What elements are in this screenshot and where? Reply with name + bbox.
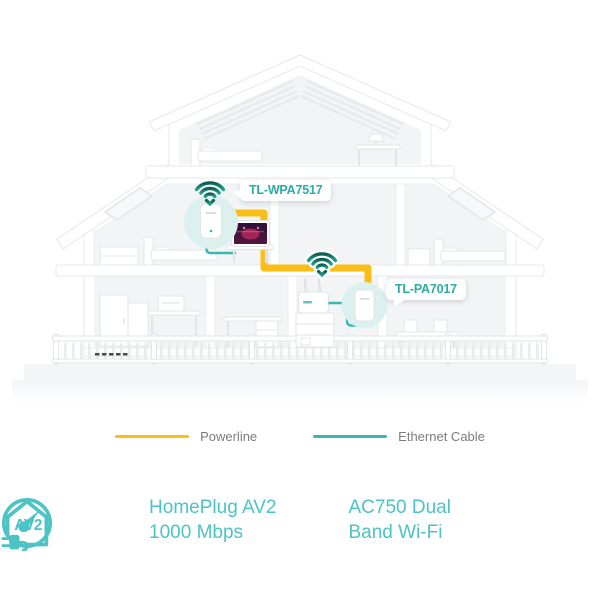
legend-item-ethernet: Ethernet Cable [313,429,485,444]
attic [146,55,454,178]
feature-row: AV2 HomePlug AV2 1000 Mbps AC750 Dual [0,495,600,545]
feature-homeplug-text: HomePlug AV2 1000 Mbps [149,495,276,545]
legend-item-powerline: Powerline [115,429,257,444]
device-label-adapter: TL-PA7017 [386,279,466,300]
legend: Powerline Ethernet Cable [0,429,600,444]
feature-homeplug-line2: 1000 Mbps [149,520,276,545]
feature-wifi-line1: AC750 Dual [349,495,451,520]
page: TL-WPA7517 TL-PA7017 Powerline Ethernet … [0,0,600,600]
base-platform [12,364,588,402]
house-illustration [0,0,600,420]
dresser [100,247,138,265]
device-label-extender: TL-WPA7517 [240,180,331,201]
ethernet-line-swatch [313,435,387,438]
powerline-adapter-device [342,282,388,328]
ethernet-label: Ethernet Cable [398,429,485,444]
feature-homeplug-line1: HomePlug AV2 [149,495,276,520]
feature-wifi-line2: Band Wi-Fi [349,520,451,545]
feature-wifi: AC750 Dual Band Wi-Fi [349,495,451,545]
feature-wifi-text: AC750 Dual Band Wi-Fi [349,495,451,545]
powerline-line-swatch [115,435,189,438]
feature-homeplug: AV2 HomePlug AV2 1000 Mbps [149,495,276,545]
powerline-label: Powerline [200,429,257,444]
speed-gauge-icon [0,495,54,551]
